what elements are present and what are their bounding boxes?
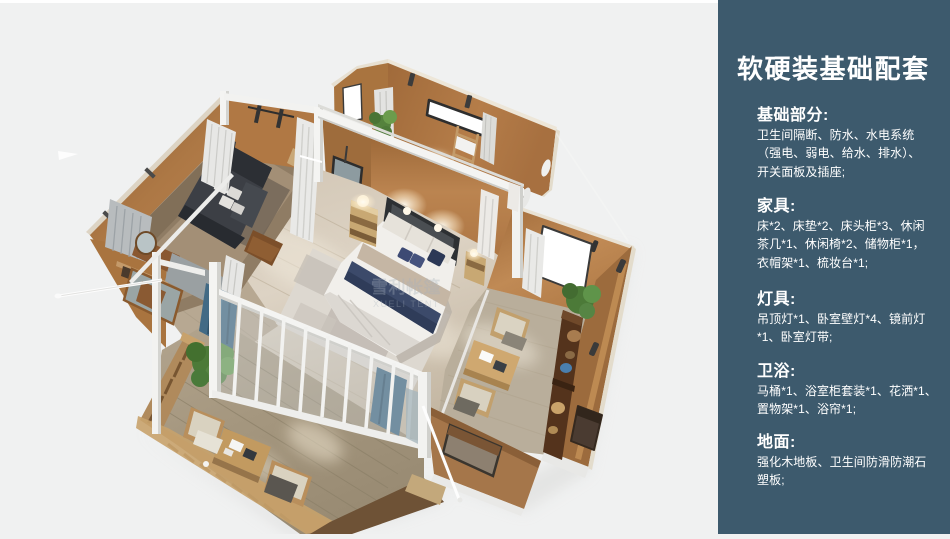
svg-text:XUELI TENT: XUELI TENT	[373, 299, 440, 309]
svg-text:雪利帐篷: 雪利帐篷	[371, 277, 441, 297]
